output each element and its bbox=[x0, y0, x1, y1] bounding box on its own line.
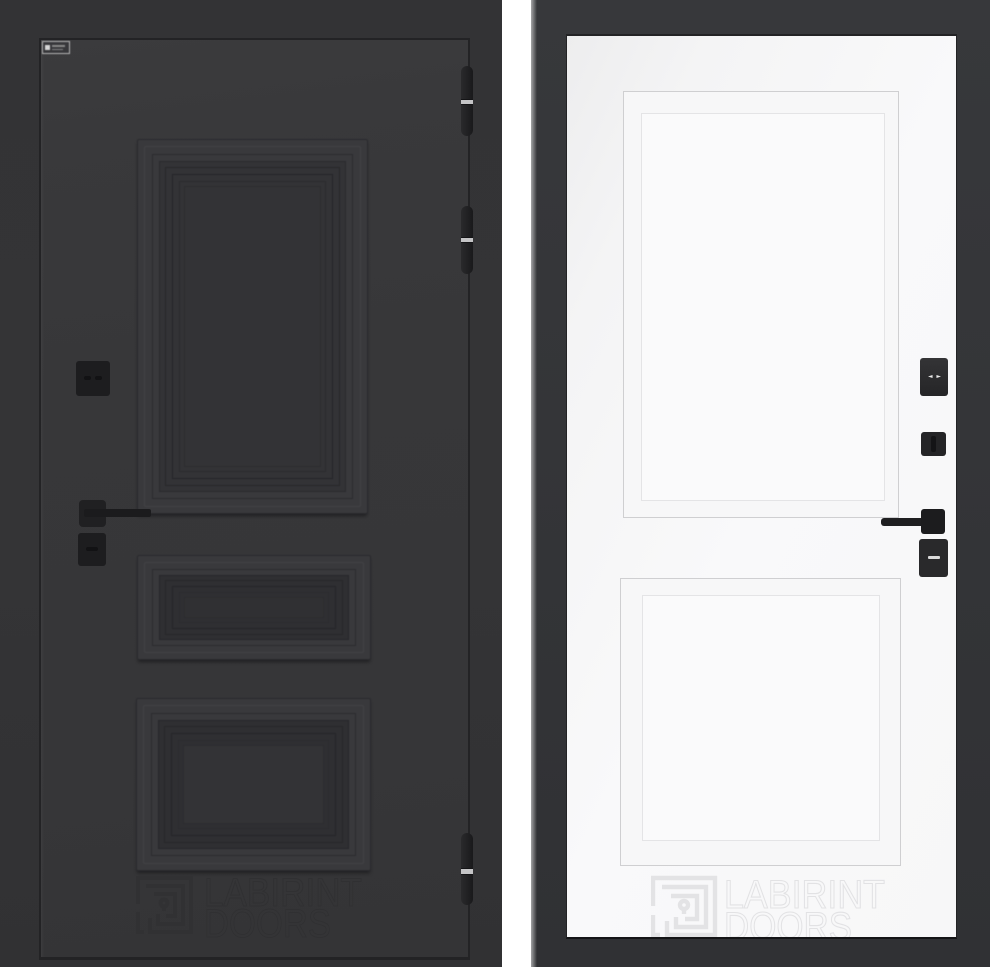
svg-text:DOORS: DOORS bbox=[204, 902, 331, 944]
svg-text:DOORS: DOORS bbox=[724, 905, 852, 939]
